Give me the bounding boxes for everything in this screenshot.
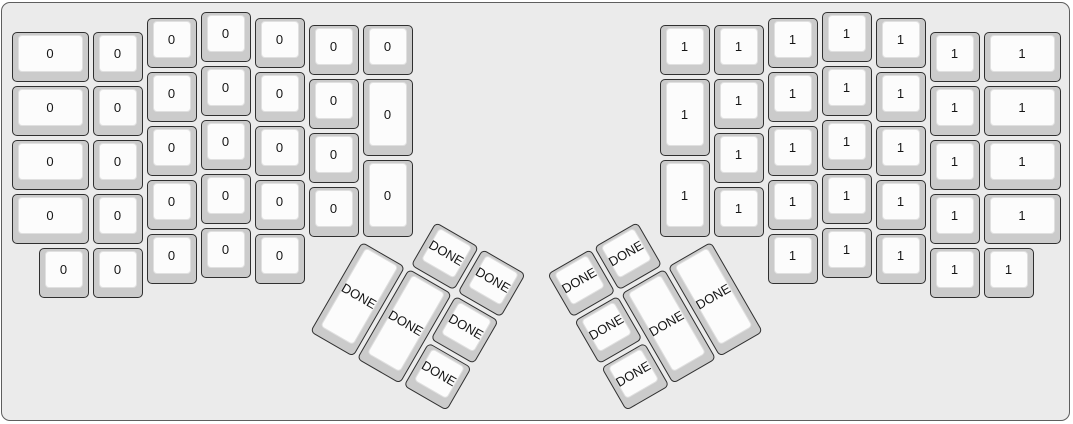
- keycap-top: DONE: [607, 348, 658, 399]
- key-label: DONE: [587, 312, 626, 342]
- key-label: DONE: [647, 309, 686, 339]
- key-label: DONE: [614, 359, 653, 389]
- keyboard: 0000000000000000000000000000000011111111…: [0, 0, 1073, 424]
- keycap-top: DONE: [553, 255, 604, 306]
- keycap-top: DONE: [580, 302, 631, 353]
- key-label: DONE: [560, 265, 599, 295]
- key-label: DONE: [694, 282, 733, 312]
- key-label: DONE: [606, 238, 645, 268]
- layout-editor-canvas: 0000000000000000000000000000000011111111…: [0, 0, 1073, 424]
- keycap-top: DONE: [600, 228, 651, 279]
